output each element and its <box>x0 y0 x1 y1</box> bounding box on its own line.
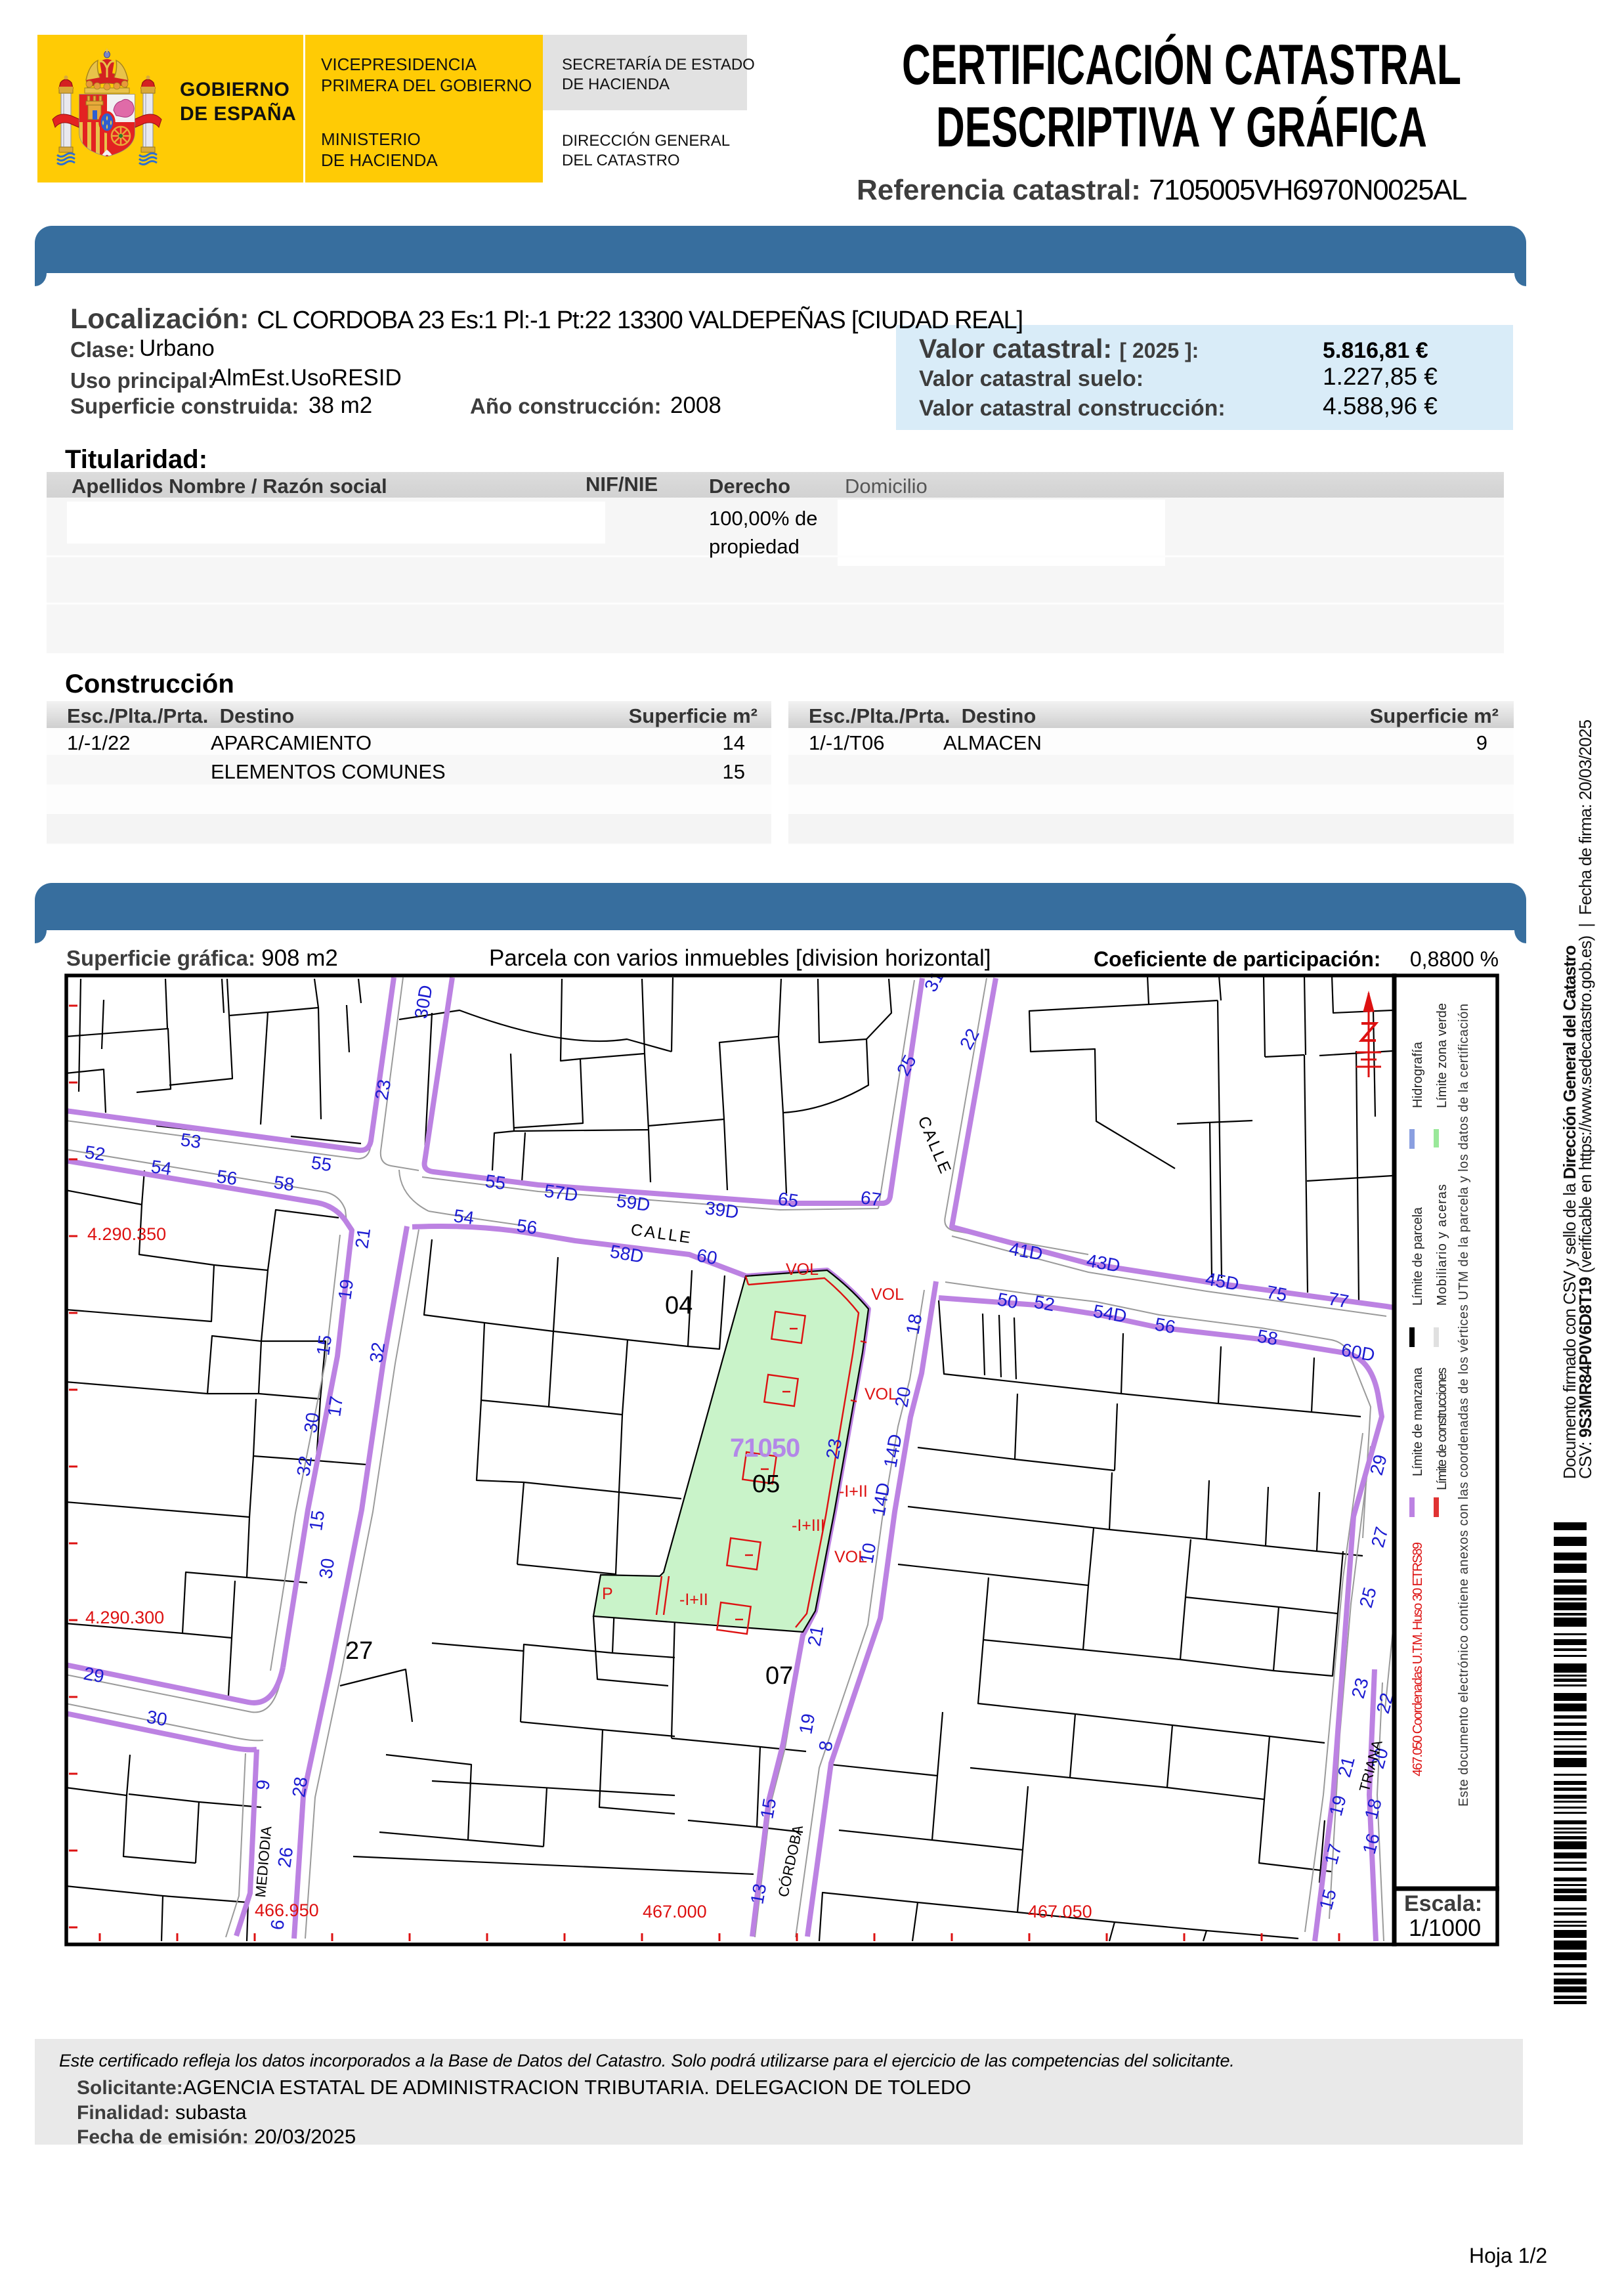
svg-text:32: 32 <box>366 1341 389 1364</box>
svg-text:30: 30 <box>315 1557 338 1580</box>
svg-text:Este documento electrónico con: Este documento electrónico contiene anex… <box>1457 1004 1471 1807</box>
svg-text:54: 54 <box>150 1156 173 1179</box>
svg-text:4.290.350: 4.290.350 <box>87 1224 166 1244</box>
svg-text:58: 58 <box>272 1172 295 1195</box>
svg-text:467.050: 467.050 <box>1028 1902 1092 1921</box>
svg-text:20: 20 <box>891 1385 914 1409</box>
svg-text:-I+II: -I+II <box>679 1591 708 1609</box>
svg-text:13: 13 <box>746 1882 770 1906</box>
svg-text:-I+II: -I+II <box>839 1482 868 1501</box>
svg-text:VOL: VOL <box>786 1260 819 1279</box>
svg-text:52: 52 <box>1033 1291 1056 1315</box>
svg-text:30: 30 <box>300 1411 323 1434</box>
svg-text:467.000: 467.000 <box>643 1902 707 1921</box>
svg-text:65: 65 <box>777 1188 800 1211</box>
svg-text:17: 17 <box>324 1395 347 1418</box>
svg-text:19: 19 <box>795 1712 819 1736</box>
svg-text:466.950: 466.950 <box>255 1900 319 1920</box>
svg-text:54: 54 <box>452 1205 475 1228</box>
svg-text:21: 21 <box>351 1227 374 1250</box>
svg-text:27: 27 <box>345 1637 373 1665</box>
svg-text:Límite de parcela: Límite de parcela <box>1411 1207 1425 1306</box>
svg-text:05: 05 <box>752 1470 780 1498</box>
svg-text:Límite de manzana: Límite de manzana <box>1411 1367 1425 1476</box>
svg-text:58: 58 <box>1256 1325 1279 1349</box>
svg-text:50: 50 <box>996 1289 1019 1312</box>
svg-text:4.290.300: 4.290.300 <box>85 1608 164 1627</box>
svg-text:56: 56 <box>515 1215 538 1238</box>
svg-text:P: P <box>602 1585 613 1603</box>
svg-text:04: 04 <box>665 1292 693 1319</box>
svg-text:55: 55 <box>310 1152 333 1175</box>
svg-text:56: 56 <box>215 1166 238 1189</box>
svg-text:55: 55 <box>484 1170 507 1193</box>
svg-text:467.050 Coordenadas U.T.M. Hus: 467.050 Coordenadas U.T.M. Huso 30 ETRS8… <box>1411 1542 1425 1776</box>
svg-text:30: 30 <box>145 1706 169 1730</box>
svg-text:Escala:: Escala: <box>1404 1891 1482 1916</box>
svg-text:07: 07 <box>765 1662 793 1690</box>
svg-text:15: 15 <box>312 1334 335 1357</box>
svg-text:Límite de construcciones: Límite de construcciones <box>1435 1367 1449 1490</box>
svg-text:29: 29 <box>82 1663 106 1686</box>
svg-text:18: 18 <box>902 1312 926 1336</box>
svg-text:19: 19 <box>334 1278 357 1301</box>
svg-text:Hidrografía: Hidrografía <box>1411 1041 1425 1108</box>
svg-text:10: 10 <box>856 1541 880 1565</box>
svg-text:28: 28 <box>288 1776 311 1799</box>
svg-text:67: 67 <box>859 1187 882 1210</box>
svg-text:75: 75 <box>1265 1281 1289 1305</box>
svg-text:23: 23 <box>822 1437 845 1461</box>
svg-text:32: 32 <box>293 1455 316 1478</box>
svg-text:71050: 71050 <box>730 1434 800 1463</box>
svg-text:-I+III: -I+III <box>792 1516 825 1535</box>
svg-text:21: 21 <box>803 1624 827 1648</box>
svg-text:1/1000: 1/1000 <box>1409 1914 1481 1941</box>
svg-text:Mobiliario y aceras: Mobiliario y aceras <box>1435 1184 1449 1306</box>
svg-text:23: 23 <box>371 1078 395 1102</box>
svg-text:60: 60 <box>695 1245 719 1268</box>
svg-text:26: 26 <box>274 1846 297 1869</box>
svg-text:VOL: VOL <box>871 1285 904 1304</box>
svg-text:53: 53 <box>179 1129 202 1152</box>
svg-text:77: 77 <box>1327 1288 1350 1312</box>
svg-text:56: 56 <box>1153 1314 1177 1337</box>
svg-text:15: 15 <box>305 1509 328 1532</box>
svg-text:52: 52 <box>83 1142 106 1165</box>
svg-text:Límite zona verde: Límite zona verde <box>1435 1003 1449 1108</box>
svg-text:15: 15 <box>756 1797 780 1820</box>
